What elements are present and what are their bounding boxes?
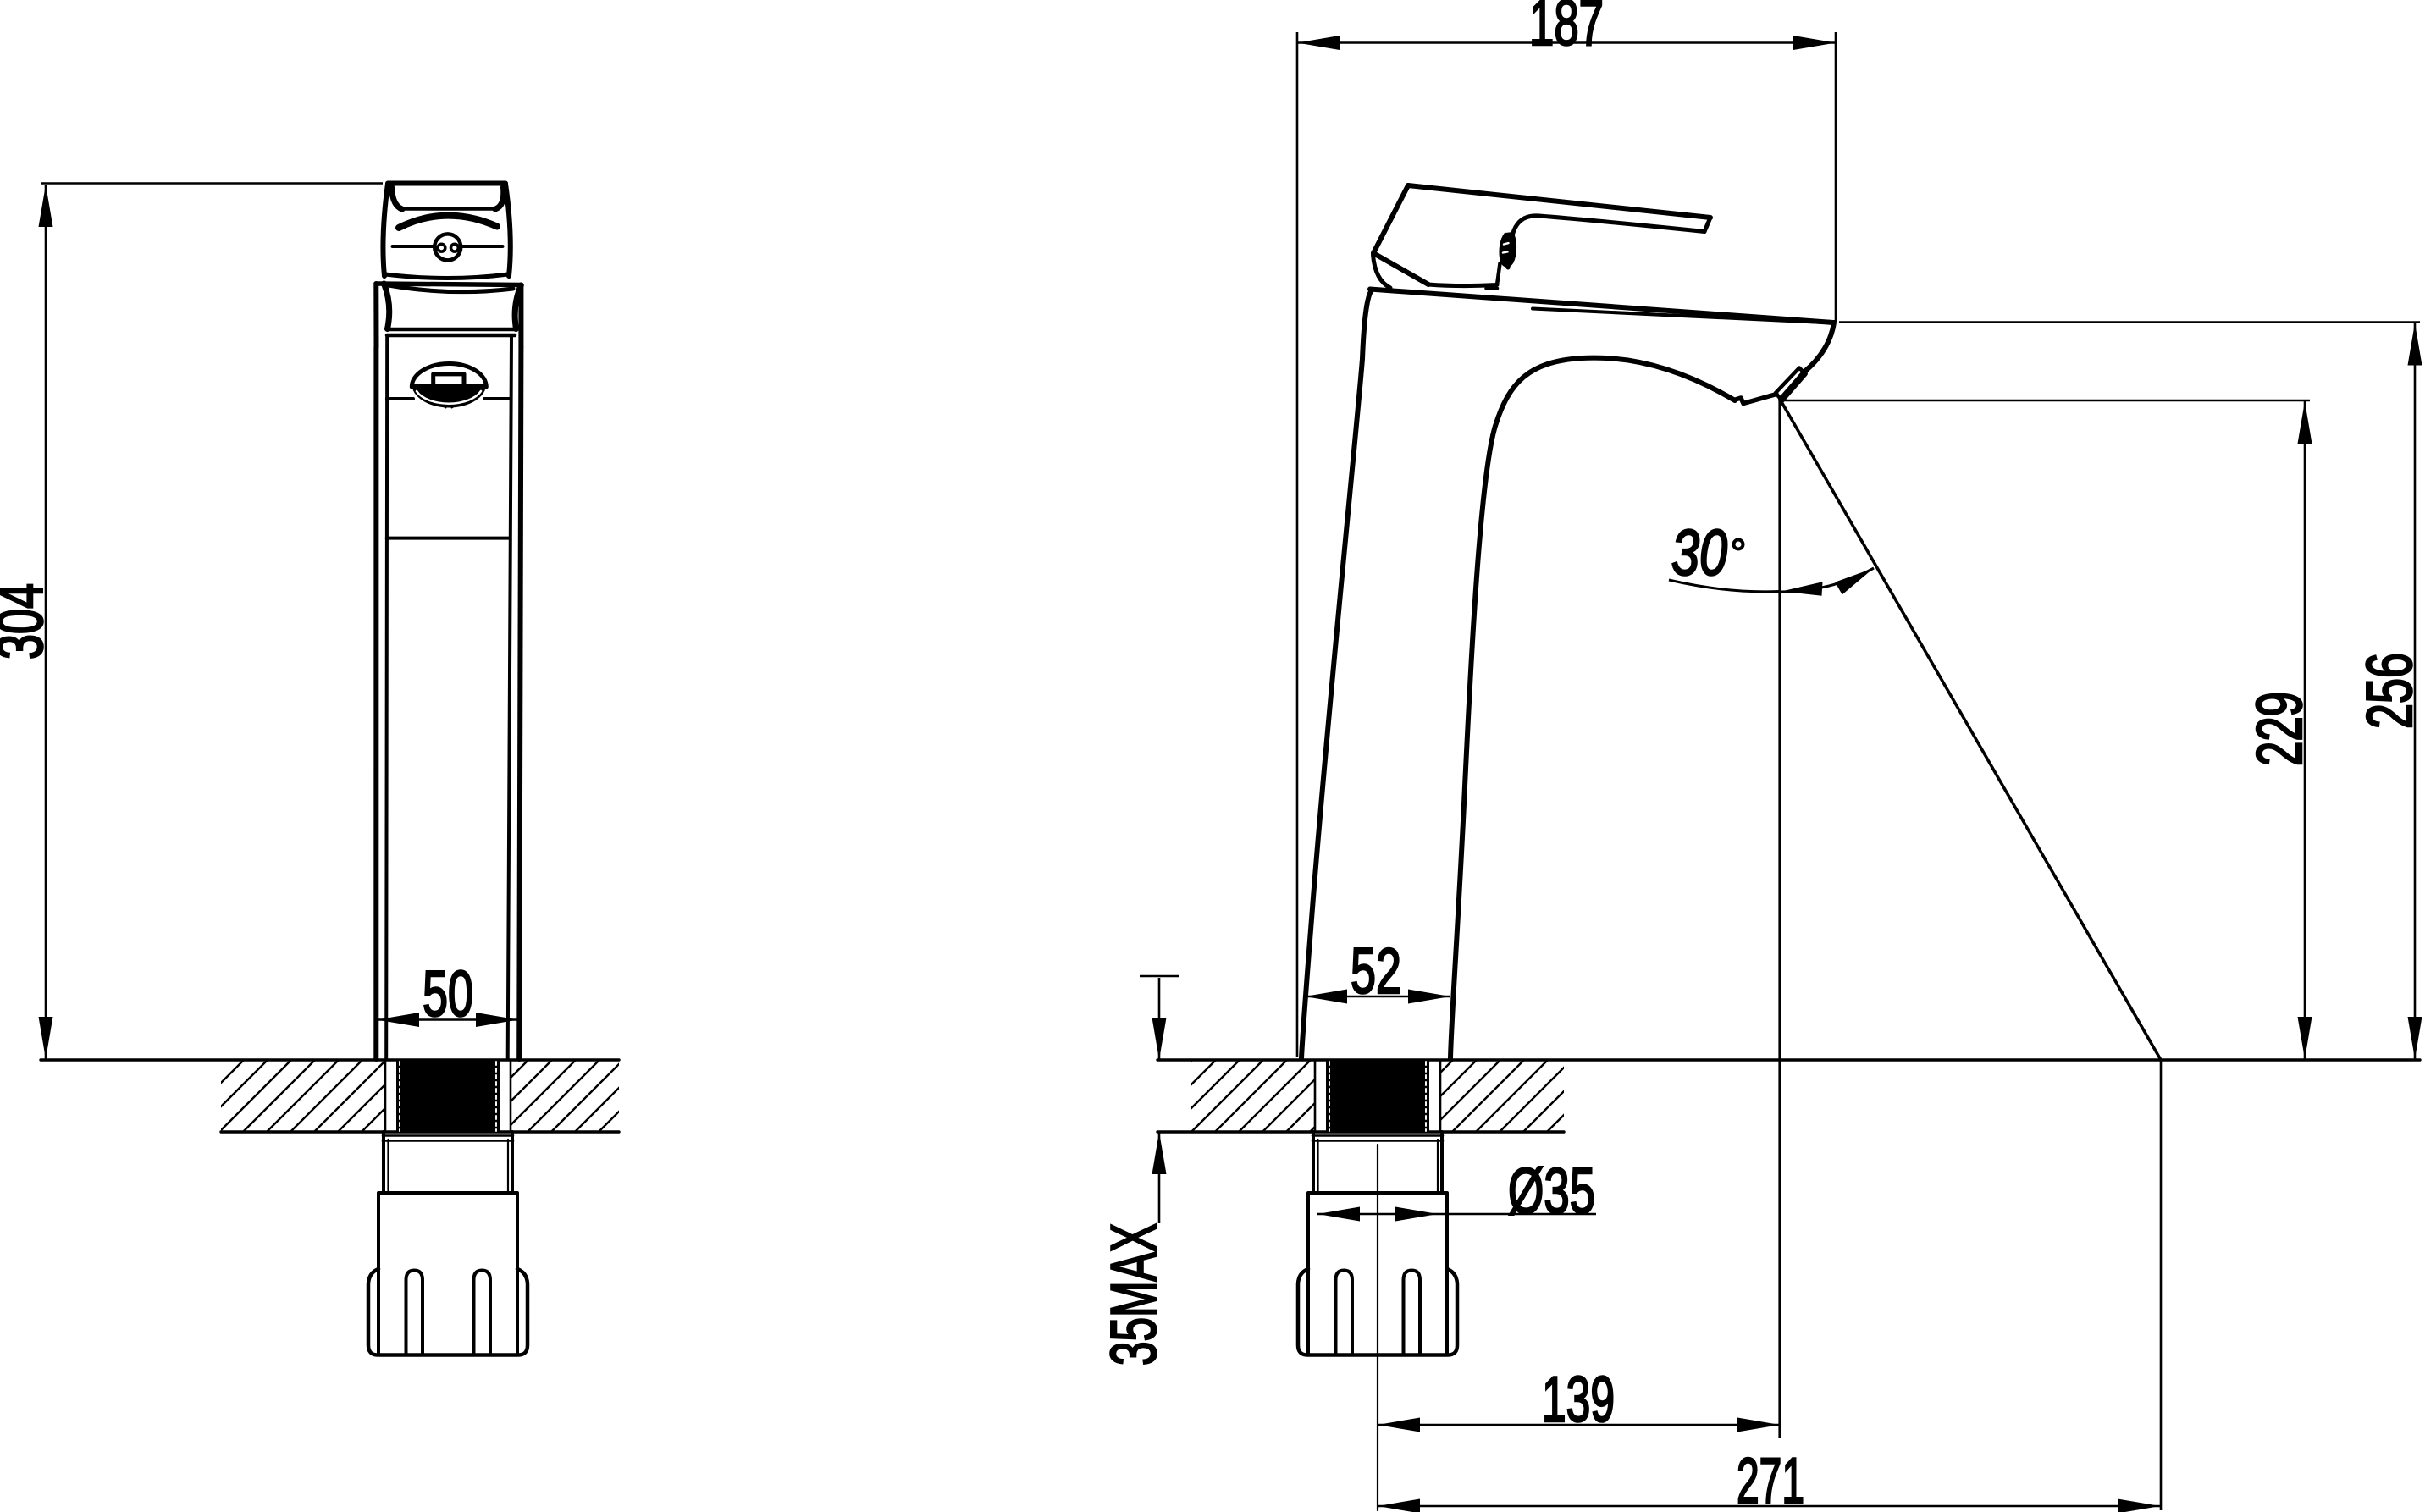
svg-text:304: 304 <box>0 583 57 659</box>
svg-text:50: 50 <box>423 958 473 1030</box>
svg-text:229: 229 <box>2244 692 2316 766</box>
svg-text:271: 271 <box>1737 1445 1804 1512</box>
svg-text:Ø35: Ø35 <box>1508 1156 1595 1228</box>
svg-text:187: 187 <box>1529 0 1604 59</box>
svg-text:30: 30 <box>1671 517 1727 589</box>
svg-text:139: 139 <box>1542 1364 1615 1436</box>
svg-text:35MAX: 35MAX <box>1098 1223 1170 1366</box>
svg-text:256: 256 <box>2354 653 2425 729</box>
svg-text:52: 52 <box>1351 935 1401 1007</box>
